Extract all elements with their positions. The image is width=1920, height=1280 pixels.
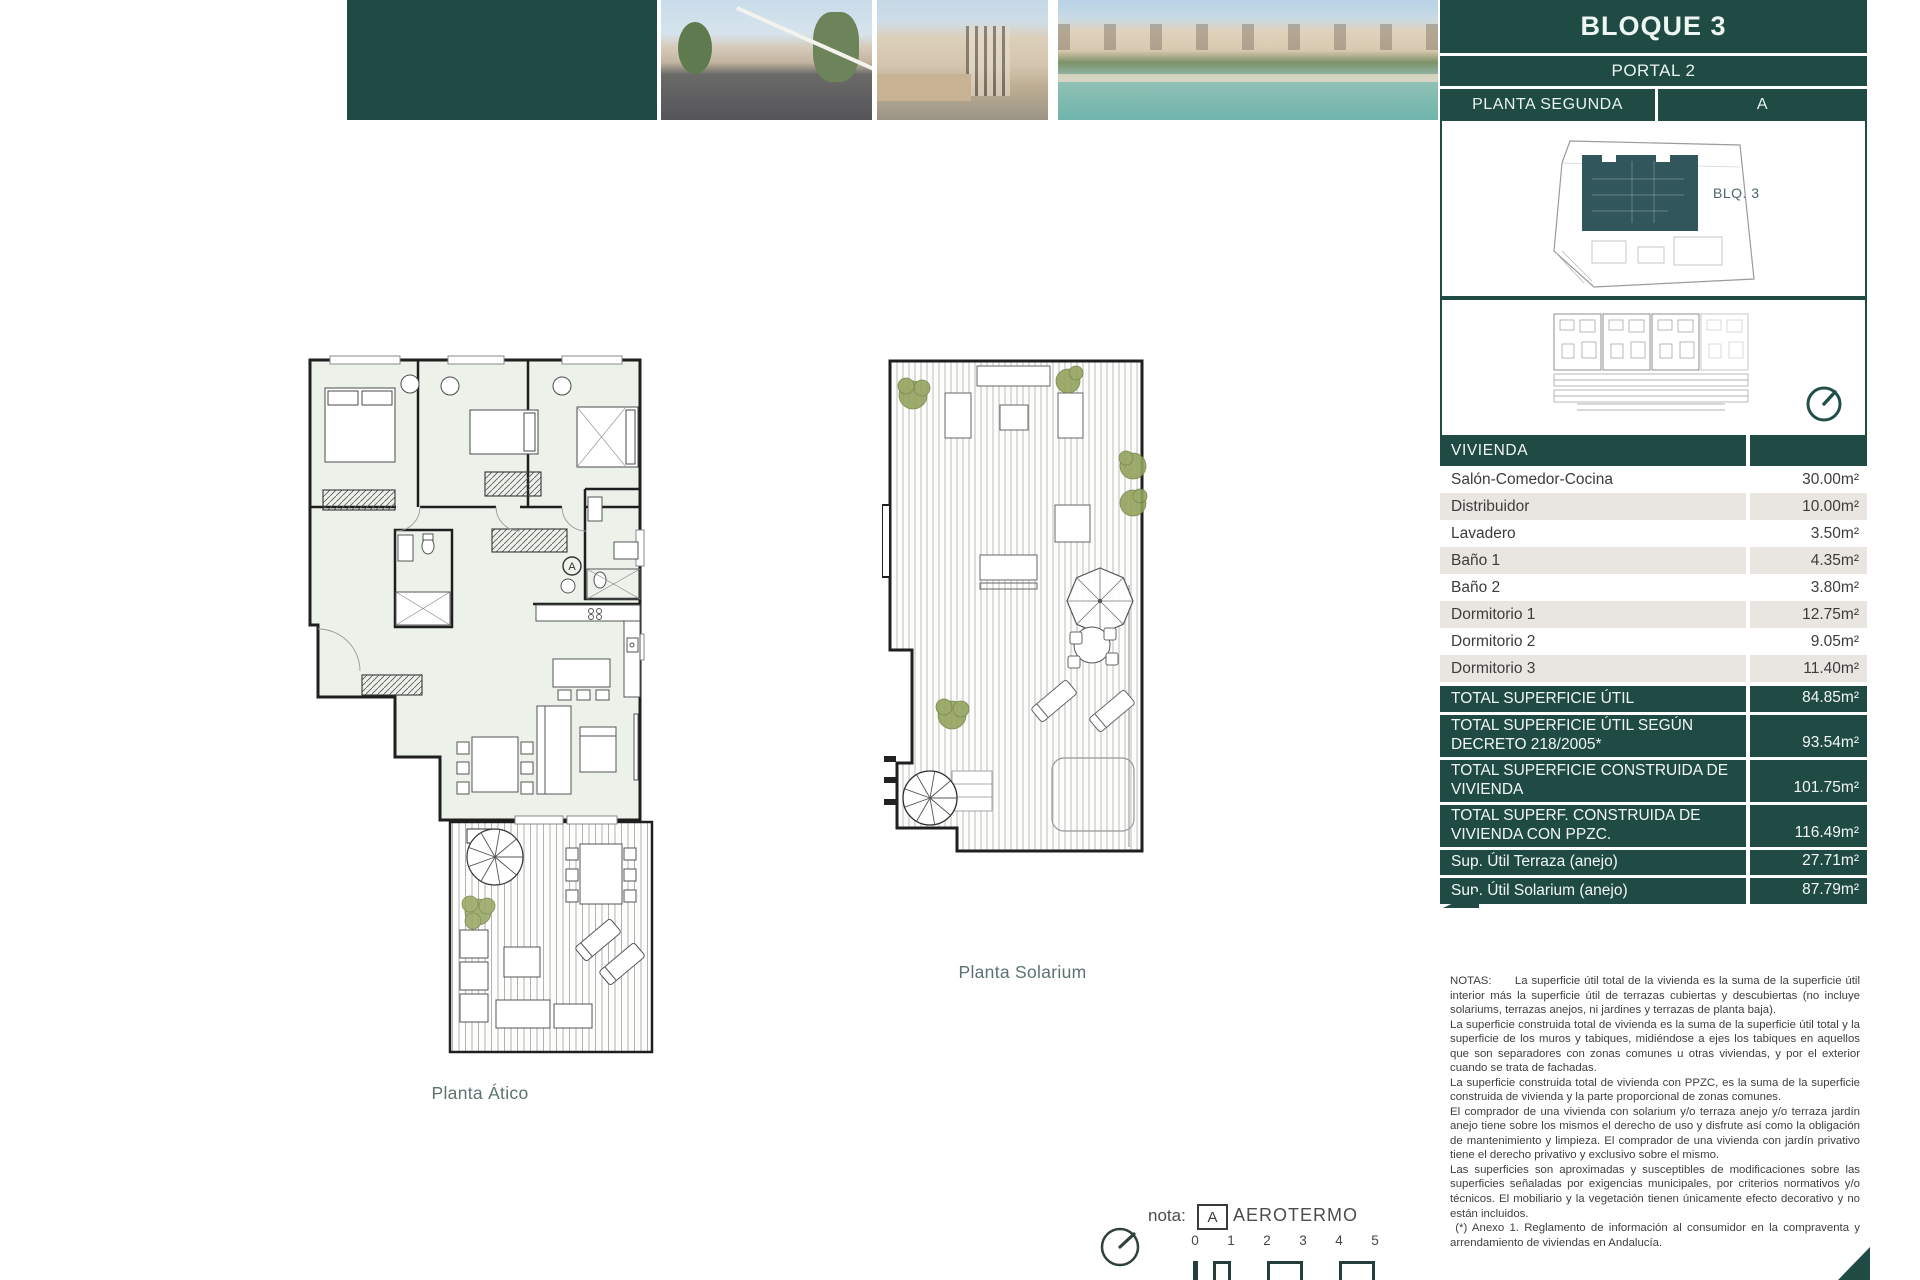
table-row: Baño 14.35m² (1440, 547, 1867, 574)
wall-notch (882, 505, 890, 577)
solarium-plan-label: Planta Solarium (900, 962, 1145, 983)
total-row: Sup. Útil Terraza (anejo)27.71m² (1440, 850, 1867, 875)
scale-bar-segment (1213, 1261, 1231, 1280)
scale-bar-segment (1339, 1261, 1375, 1280)
total-row: TOTAL SUPERFICIE CONSTRUIDA DE VIVIENDA1… (1440, 760, 1867, 802)
balconies-texture (1058, 24, 1438, 50)
scale-bar-origin (1193, 1261, 1198, 1280)
table-row: Dormitorio 311.40m² (1440, 655, 1867, 682)
table-row: Baño 23.80m² (1440, 574, 1867, 601)
scale-tick: 2 (1255, 1233, 1279, 1248)
table-row: Distribuidor10.00m² (1440, 493, 1867, 520)
table-row: Salón-Comedor-Cocina30.00m² (1440, 466, 1867, 493)
scale-bar-segment (1267, 1261, 1303, 1280)
site-plan-box: BLQ. 3 (1440, 121, 1867, 300)
note-paragraph: La superficie construida total de vivien… (1450, 1018, 1860, 1076)
table-row: Lavadero3.50m² (1440, 520, 1867, 547)
aerotermo-symbol-box: A (1197, 1204, 1228, 1230)
atico-plan-label: Planta Ático (360, 1083, 600, 1104)
blq-3-label: BLQ. 3 (1713, 185, 1760, 201)
page: BLOQUE 3 PORTAL 2 PLANTA SEGUNDA A (0, 0, 1920, 1280)
brand-color-block (347, 0, 657, 120)
photo-building-gate (877, 0, 1048, 120)
total-row: TOTAL SUPERF. CONSTRUIDA DE VIVIENDA CON… (1440, 805, 1867, 847)
photo-street-entrance (661, 0, 872, 120)
scale-tick: 1 (1219, 1233, 1243, 1248)
table-row: Dormitorio 29.05m² (1440, 628, 1867, 655)
table-row: Dormitorio 112.75m² (1440, 601, 1867, 628)
total-row: Sup. Útil Solarium (anejo)87.79m² (1440, 878, 1867, 904)
aerotermo-text: AEROTERMO (1233, 1205, 1358, 1226)
key-plan-drawing (1442, 300, 1865, 433)
scale-tick: 4 (1327, 1233, 1351, 1248)
unit-label: A (1658, 89, 1867, 121)
scale-tick: 3 (1291, 1233, 1315, 1248)
wood-slats (966, 26, 1010, 96)
page-corner-triangle (1838, 1247, 1870, 1280)
floor-unit-row: PLANTA SEGUNDA A (1440, 89, 1867, 121)
note-paragraph: El comprador de una vivienda con solariu… (1450, 1105, 1860, 1163)
total-row: TOTAL SUPERFICIE ÚTIL84.85m² (1440, 686, 1867, 712)
site-plan-drawing: BLQ. 3 (1442, 121, 1865, 296)
note-paragraph: (*) Anexo 1. Reglamento de información a… (1450, 1221, 1860, 1250)
areas-table: VIVIENDA Salón-Comedor-Cocina30.00m² Dis… (1440, 435, 1867, 904)
block-footprint (1582, 155, 1698, 231)
scale-tick: 5 (1363, 1233, 1387, 1248)
north-compass-icon (1096, 1223, 1144, 1271)
block-title: BLOQUE 3 (1440, 0, 1867, 53)
floor-plan-atico: A (300, 352, 662, 1078)
stone-wall (877, 74, 971, 100)
legal-notes: NOTAS: La superficie útil total de la vi… (1450, 974, 1860, 1250)
floor-plan-solarium (882, 353, 1152, 858)
table-fold-triangle (1443, 891, 1479, 908)
spiral-stair (467, 829, 523, 885)
floor-label: PLANTA SEGUNDA (1440, 89, 1655, 121)
scale-tick: 0 (1183, 1233, 1207, 1248)
north-compass-icon (1808, 388, 1840, 420)
entry-steps (884, 756, 896, 805)
nota-label: nota: (1148, 1206, 1186, 1226)
note-paragraph: La superficie construida total de vivien… (1450, 1076, 1860, 1105)
aerotermo-letter: A (568, 561, 576, 573)
pool-deck (1058, 74, 1438, 81)
table-header-row: VIVIENDA (1440, 435, 1867, 466)
note-paragraph: NOTAS: La superficie útil total de la vi… (1450, 974, 1860, 1018)
key-plan-box (1440, 300, 1867, 435)
tree-shape (678, 22, 712, 74)
photo-pool (1058, 0, 1438, 120)
portal-subtitle: PORTAL 2 (1440, 56, 1867, 86)
info-sidebar: BLOQUE 3 PORTAL 2 PLANTA SEGUNDA A (1440, 0, 1867, 904)
table-header-label: VIVIENDA (1440, 435, 1746, 466)
note-paragraph: Las superficies son aproximadas y suscep… (1450, 1163, 1860, 1221)
total-row: TOTAL SUPERFICIE ÚTIL SEGÚN DECRETO 218/… (1440, 715, 1867, 757)
